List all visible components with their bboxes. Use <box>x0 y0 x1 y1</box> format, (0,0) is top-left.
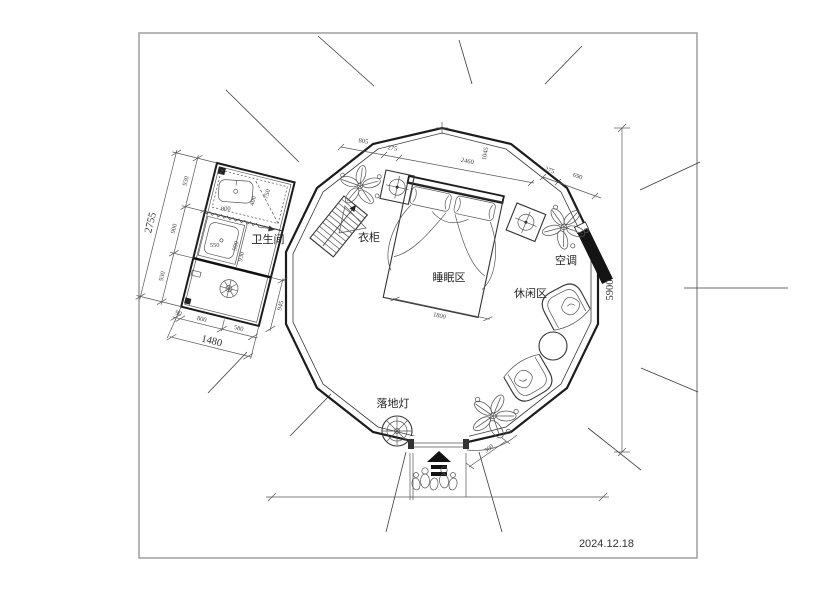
label-bathroom: 卫生间 <box>252 232 285 246</box>
label-leisure-area: 休闲区 <box>514 286 547 300</box>
floor-lamp-symbol <box>382 416 412 446</box>
date-stamp: 2024.12.18 <box>579 538 634 550</box>
label-sleeping-area: 睡眠区 <box>433 271 466 284</box>
label-floor-lamp: 落地灯 <box>377 397 410 410</box>
floor-plan-canvas: 800 750 400 550 900 930 <box>0 0 837 592</box>
dim-shower-550: 550 <box>210 242 220 249</box>
dim-vanity-800: 800 <box>221 206 231 213</box>
label-wardrobe: 衣柜 <box>358 230 380 244</box>
label-air-conditioner: 空调 <box>555 253 577 267</box>
floor-plan-page: 800 750 400 550 900 930 <box>0 0 837 592</box>
dim-overall-5900: 5900 <box>605 280 616 301</box>
